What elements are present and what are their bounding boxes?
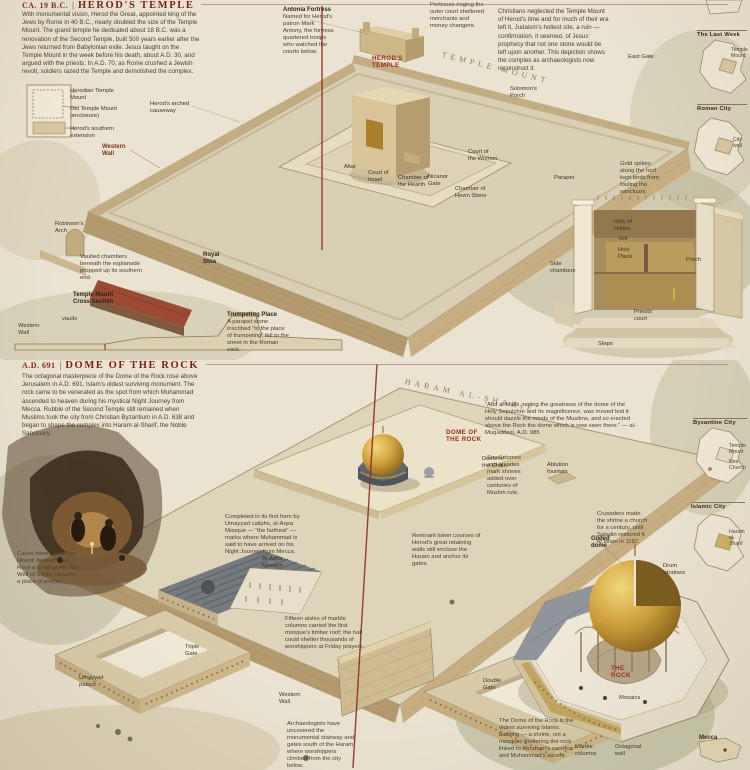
herod-right-note: Christians neglected the Temple Mount of… [498,8,610,74]
header-rule-2 [206,364,728,365]
header-divider: | [72,0,74,10]
temple-mount-plan-diagram [26,84,78,142]
header-rule [201,4,728,5]
dome-section-header: A.D. 691 | DOME OF THE ROCK [22,360,728,371]
herod-section-title: HEROD'S TEMPLE [78,0,194,11]
sidebar-map-last-week [694,36,750,98]
herod-section-header: CA. 19 B.C. | HEROD'S TEMPLE [22,0,728,11]
infographic-canvas: CA. 19 B.C. | HEROD'S TEMPLE A.D. 691 | … [0,0,750,770]
dome-era-label: A.D. 691 [22,361,56,370]
dome-intro-paragraph: The octagonal masterpiece of the Dome of… [22,373,200,439]
sidebar-map-roman-city [688,112,748,182]
header-divider-2: | [60,360,62,370]
dome-section-title: DOME OF THE ROCK [65,360,199,371]
sidebar-map-byzantine-city [690,424,748,488]
temple-cutaway-illustration [548,160,748,365]
cave-illustration [0,418,185,613]
herod-era-label: CA. 19 B.C. [22,1,68,10]
herod-intro-paragraph: With monumental vision, Herod the Great,… [22,11,200,77]
temple-mount-cross-section-diagram [10,298,350,352]
sidebar-map-islamic-city [688,508,748,578]
